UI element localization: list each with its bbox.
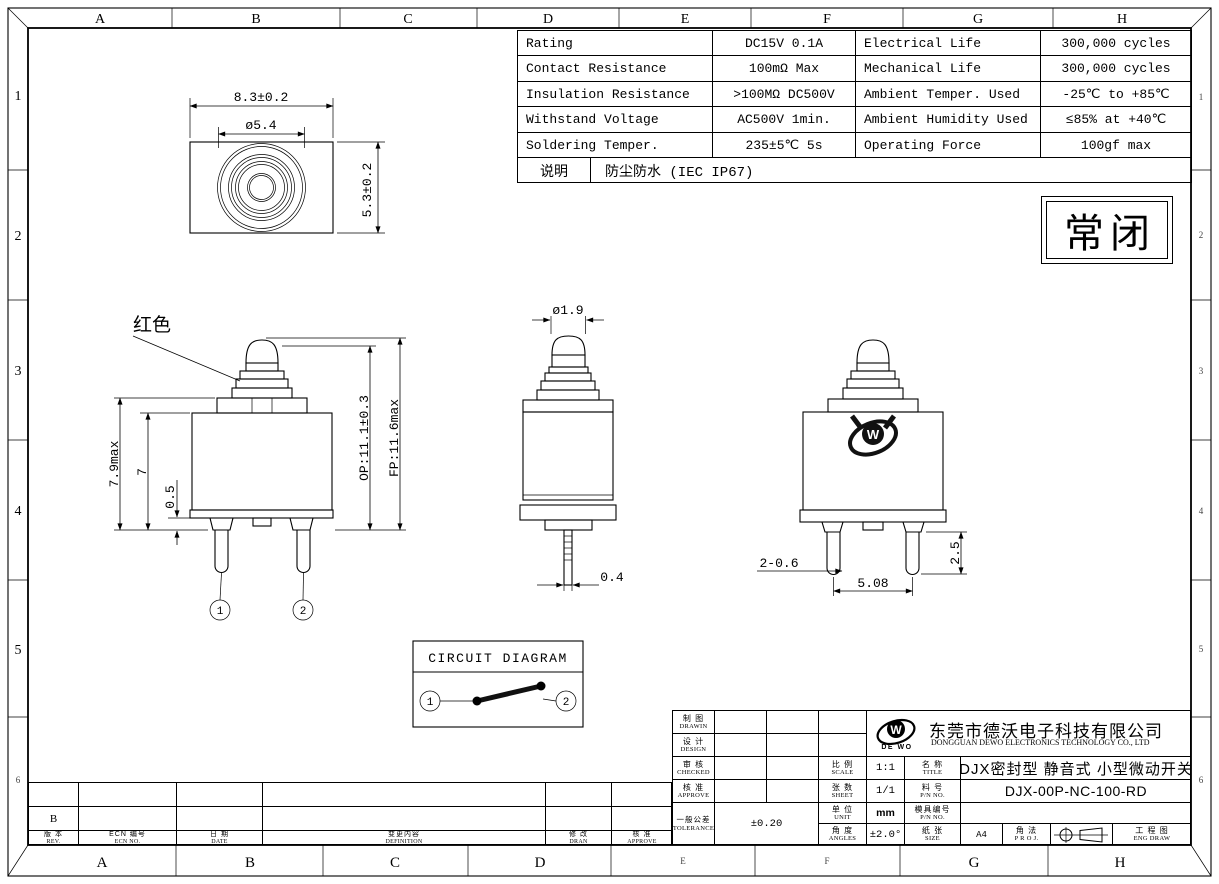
spec-label: Ambient Temper. Used — [855, 81, 1040, 106]
grid-label: 2 — [15, 229, 22, 244]
grid-label: H — [1115, 855, 1126, 871]
titleblock-drawn-name-cell — [714, 710, 766, 733]
grid-label: C — [390, 855, 400, 871]
spec-value: 235±5℃ 5s — [712, 132, 855, 157]
revision-header-date: 日 期DATE — [176, 830, 262, 845]
grid-label: C — [403, 12, 412, 27]
revision-empty-cell — [78, 782, 176, 806]
revision-empty-cell — [545, 782, 611, 806]
titleblock-tolerance-label: 一般公差TOLERANCE — [672, 802, 714, 845]
spec-table: Rating DC15V 0.1A Electrical Life 300,00… — [517, 30, 1192, 183]
grid-label: 1 — [15, 89, 22, 104]
engineering-drawing-sheet: A B C D E F G H A B C D E F G H 1 2 — [0, 0, 1219, 884]
spec-note-value: 防尘防水 (IEC IP67) — [590, 157, 1191, 183]
revision-empty-cell — [611, 782, 672, 806]
top-view-drawing: 8.3±0.2 ø5.4 5.3±0.2 — [190, 90, 385, 233]
revision-empty-cell — [262, 806, 545, 830]
spec-label: Contact Resistance — [517, 55, 712, 81]
revision-empty-cell — [611, 806, 672, 830]
spec-value: AC500V 1min. — [712, 106, 855, 132]
revision-empty-cell — [28, 782, 78, 806]
spec-label: Insulation Resistance — [517, 81, 712, 106]
tolerance-value: ±0.20 — [714, 802, 818, 845]
grid-numbers-right: 1 2 3 4 5 6 — [1199, 92, 1204, 785]
color-note-text: 红色 — [133, 314, 171, 336]
grid-label: 6 — [1199, 775, 1204, 785]
grid-label: B — [251, 12, 260, 27]
unit-value: mm — [866, 802, 904, 823]
grid-label: D — [543, 12, 553, 27]
dewo-logo-icon: W DE WO — [873, 717, 925, 751]
revision-empty-cell — [176, 782, 262, 806]
svg-text:W: W — [890, 723, 902, 737]
dewo-logo-text: DE WO — [881, 744, 912, 751]
part-number-value: DJX-00P-NC-100-RD — [960, 779, 1191, 802]
paper-size-value: A4 — [960, 823, 1002, 845]
grid-label: 3 — [15, 364, 22, 379]
titleblock-scale-value: 1:1 — [866, 756, 904, 779]
titleblock-drawn-label: 制 图DRAWIN — [672, 710, 714, 733]
spec-value: 100mΩ Max — [712, 55, 855, 81]
spec-value: >100MΩ DC500V — [712, 81, 855, 106]
titleblock-proj-label: 角 法P R O J. — [1002, 823, 1050, 845]
dim-body-height-text: 7.9max — [107, 440, 122, 487]
grid-numbers-left: 1 2 3 4 5 6 — [15, 89, 22, 785]
revision-header-draw: 修 改DRAN — [545, 830, 611, 845]
drawing-title-value: DJX密封型 静音式 小型微动开关 — [960, 756, 1191, 779]
state-label: 常闭 — [1058, 201, 1156, 259]
circuit-title-text: CIRCUIT DIAGRAM — [428, 651, 568, 666]
pin1-balloon-text: 1 — [217, 606, 224, 618]
titleblock-size-label: 纸 张SIZE — [904, 823, 960, 845]
spec-label: Soldering Temper. — [517, 132, 712, 157]
circuit-terminal2-text: 2 — [563, 697, 570, 709]
grid-label: E — [680, 856, 686, 866]
title-block: 制 图DRAWIN 设 计DESIGN W DE WO 东莞市德沃电子科技有限公… — [672, 710, 1191, 845]
emblem-w-text: W — [867, 427, 880, 442]
titleblock-design-name-cell — [714, 733, 766, 756]
grid-label: 5 — [1199, 644, 1204, 654]
grid-label: 2 — [1199, 230, 1204, 240]
circuit-diagram: CIRCUIT DIAGRAM 1 2 — [413, 641, 583, 727]
titleblock-sheet-label: 张 数SHEET — [818, 779, 866, 802]
titleblock-checked-name-cell — [714, 756, 766, 779]
dim-pitch-text: 5.08 — [857, 576, 888, 591]
spec-label: Operating Force — [855, 132, 1040, 157]
grid-label: 1 — [1199, 92, 1204, 102]
state-box: 常闭 — [1041, 196, 1173, 264]
titleblock-eng-label: 工 程 图ENG DRAW — [1112, 823, 1191, 845]
grid-label: D — [535, 855, 546, 871]
dim-pin-length-text: 2.5 — [948, 541, 963, 564]
grid-label: E — [681, 12, 690, 27]
spec-value: -25℃ to +85℃ — [1040, 81, 1191, 106]
revision-header-ecn: ECN 编号ECN NO. — [78, 830, 176, 845]
titleblock-sheet-value: 1/1 — [866, 779, 904, 802]
revision-empty-cell — [78, 806, 176, 830]
grid-label: F — [823, 12, 831, 27]
grid-label: 5 — [15, 643, 22, 658]
company-name-en: DONGGUAN DEWO ELECTRONICS TECHNOLOGY CO.… — [931, 738, 1150, 747]
titleblock-drawn-extra-cell — [818, 710, 866, 733]
spec-label: Ambient Humidity Used — [855, 106, 1040, 132]
back-view-drawing: W 2-0.6 5.08 2.5 — [757, 340, 967, 596]
dim-bezel-text: ø5.4 — [245, 118, 276, 133]
titleblock-design-extra-cell — [818, 733, 866, 756]
grid-label: A — [95, 12, 106, 27]
grid-label: 3 — [1199, 366, 1204, 376]
titleblock-drawn-date-cell — [766, 710, 818, 733]
dim-pin-thickness-text: 0.4 — [600, 570, 624, 585]
spec-value: 100gf max — [1040, 132, 1191, 157]
grid-label: A — [97, 855, 108, 871]
grid-letters-top: A B C D E F G H — [95, 12, 1127, 27]
dim-half-text: 0.5 — [163, 485, 178, 508]
revision-empty-cell — [176, 806, 262, 830]
spec-label: Electrical Life — [855, 30, 1040, 55]
mold-number-value-cell — [960, 802, 1191, 823]
grid-label: H — [1117, 12, 1127, 27]
revision-header-rev: 版 本REV. — [28, 830, 78, 845]
titleblock-checked-label: 审 核CHECKED — [672, 756, 714, 779]
titleblock-mold-label: 模具编号P/N NO. — [904, 802, 960, 823]
spec-value: ≤85% at +40℃ — [1040, 106, 1191, 132]
dim-fp-text: FP:11.6max — [387, 399, 402, 477]
titleblock-design-label: 设 计DESIGN — [672, 733, 714, 756]
company-header: W DE WO 东莞市德沃电子科技有限公司 DONGGUAN DEWO ELEC… — [866, 710, 1191, 756]
front-view-drawing: 红色 1 — [107, 314, 406, 620]
grid-label: F — [824, 856, 829, 866]
spec-label: Withstand Voltage — [517, 106, 712, 132]
titleblock-scale-label: 比 例SCALE — [818, 756, 866, 779]
grid-label: B — [245, 855, 255, 871]
titleblock-angles-label: 角 度ANGLES — [818, 823, 866, 845]
titleblock-approve-date-cell — [766, 779, 818, 802]
grid-label: 4 — [1199, 506, 1204, 516]
circuit-terminal1-text: 1 — [427, 697, 434, 709]
dewo-emblem: W — [845, 415, 901, 461]
titleblock-unit-label: 单 位UNIT — [818, 802, 866, 823]
titleblock-approve-name-cell — [714, 779, 766, 802]
grid-label: G — [969, 855, 980, 871]
spec-label: Mechanical Life — [855, 55, 1040, 81]
spec-value: DC15V 0.1A — [712, 30, 855, 55]
revision-rev-value: B — [28, 806, 78, 830]
projection-symbol-cell — [1050, 823, 1112, 845]
projection-symbol-icon — [1051, 825, 1111, 845]
dim-width-text: 8.3±0.2 — [234, 90, 289, 105]
dim-plunger-text: ø1.9 — [552, 303, 583, 318]
titleblock-design-date-cell — [766, 733, 818, 756]
titleblock-checked-date-cell — [766, 756, 818, 779]
spec-note-label: 说明 — [517, 157, 590, 183]
spec-label: Rating — [517, 30, 712, 55]
revision-header-approve: 核 准APPROVE — [611, 830, 672, 845]
dim-pin-width-text: 2-0.6 — [759, 556, 798, 571]
dim-seven-text: 7 — [135, 468, 150, 476]
titleblock-title-label: 名 称TITLE — [904, 756, 960, 779]
pin2-balloon-text: 2 — [300, 606, 307, 618]
revision-header-definition: 变更内容DEFINITION — [262, 830, 545, 845]
titleblock-pn-label: 料 号P/N NO. — [904, 779, 960, 802]
grid-label: G — [973, 12, 983, 27]
spec-value: 300,000 cycles — [1040, 55, 1191, 81]
angles-value: ±2.0° — [866, 823, 904, 845]
revision-table: B 版 本REV. ECN 编号ECN NO. 日 期DATE 变更内容DEFI… — [28, 782, 672, 845]
revision-empty-cell — [262, 782, 545, 806]
spec-value: 300,000 cycles — [1040, 30, 1191, 55]
titleblock-approve-label: 核 准APPROVE — [672, 779, 714, 802]
dim-op-text: OP:11.1±0.3 — [357, 395, 372, 481]
grid-label: 4 — [15, 504, 22, 519]
grid-label: 6 — [16, 775, 21, 785]
state-box-inner: 常闭 — [1046, 201, 1168, 259]
side-view-drawing: ø1.9 0.4 — [520, 303, 624, 591]
revision-empty-cell — [545, 806, 611, 830]
dim-height-text: 5.3±0.2 — [360, 163, 375, 218]
